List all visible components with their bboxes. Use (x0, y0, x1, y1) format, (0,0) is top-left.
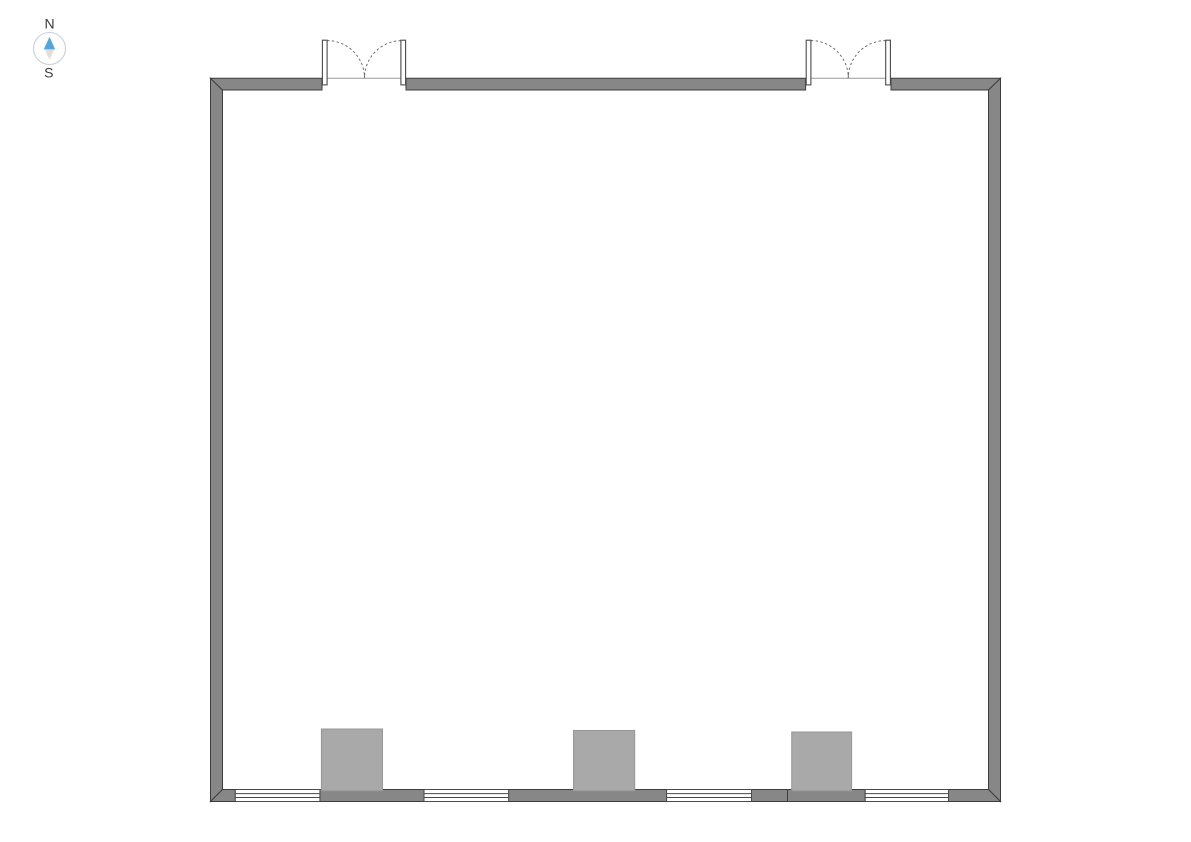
svg-text:N: N (44, 16, 54, 32)
svg-text:S: S (44, 65, 53, 81)
